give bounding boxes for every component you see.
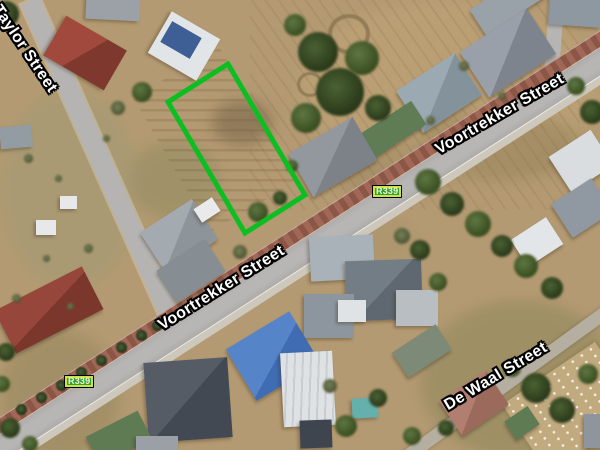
- tree: [514, 254, 538, 278]
- tree: [465, 211, 491, 237]
- tree: [291, 103, 321, 133]
- building: [338, 300, 366, 322]
- building: [549, 0, 600, 28]
- palm-tree: [136, 330, 147, 341]
- building: [143, 357, 232, 443]
- tree: [567, 77, 585, 95]
- tree: [111, 101, 125, 115]
- building: [300, 419, 333, 448]
- building: [584, 414, 600, 448]
- tree: [345, 41, 379, 75]
- tree: [298, 32, 338, 72]
- tree: [365, 95, 391, 121]
- bush: [84, 244, 93, 253]
- satellite-map[interactable]: Taylor Street Voortrekker Street Voortre…: [0, 0, 600, 450]
- bush: [459, 61, 469, 71]
- bush: [24, 154, 33, 163]
- tree: [394, 228, 410, 244]
- bush: [55, 175, 62, 182]
- tree: [323, 379, 337, 393]
- tree: [286, 160, 298, 172]
- route-badge-r339-west: R339: [64, 375, 94, 388]
- tree: [440, 192, 464, 216]
- palm-tree: [116, 342, 127, 353]
- tree: [438, 420, 454, 436]
- building: [0, 125, 33, 150]
- building: [36, 220, 56, 235]
- tree: [541, 277, 563, 299]
- tree: [429, 273, 447, 291]
- route-badge-r339-east: R339: [372, 185, 402, 198]
- tree: [316, 68, 364, 116]
- building: [85, 0, 140, 21]
- tree: [403, 427, 421, 445]
- palm-tree: [16, 404, 27, 415]
- tree: [22, 436, 38, 450]
- tree: [521, 373, 551, 403]
- tree: [491, 235, 513, 257]
- building: [396, 290, 438, 326]
- bush: [103, 135, 110, 142]
- building: [136, 436, 178, 450]
- tree: [132, 82, 152, 102]
- bush: [426, 116, 435, 125]
- palm-tree: [36, 392, 47, 403]
- tree: [233, 245, 247, 259]
- tree: [578, 364, 598, 384]
- tree: [580, 100, 600, 124]
- tree: [410, 240, 430, 260]
- tree: [369, 389, 387, 407]
- bush: [43, 255, 50, 262]
- tree: [549, 397, 575, 423]
- bush: [498, 92, 506, 100]
- tree: [415, 169, 441, 195]
- tree: [284, 14, 306, 36]
- bush: [12, 294, 21, 303]
- palm-tree: [96, 355, 107, 366]
- tree: [248, 202, 268, 222]
- tree: [273, 191, 287, 205]
- ground-patch: [212, 100, 272, 145]
- bush: [67, 303, 74, 310]
- building: [60, 196, 77, 209]
- tree: [0, 418, 20, 438]
- tree: [335, 415, 357, 437]
